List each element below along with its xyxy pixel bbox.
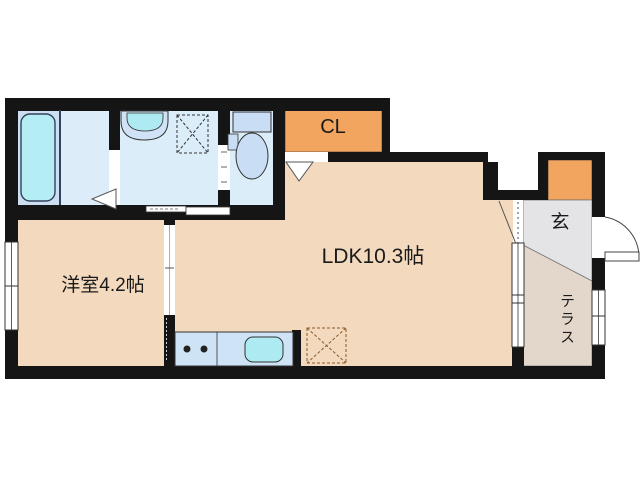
bathroom-floor <box>61 111 109 205</box>
wall-toilet-right <box>273 98 285 220</box>
closet-door-opening <box>285 152 328 162</box>
wall-below-closet <box>328 152 488 162</box>
closet-label: CL <box>308 116 358 138</box>
stove-burner-icon <box>201 346 208 353</box>
floorplan-canvas: 洋室4.2帖 LDK10.3帖 CL 玄 テラス <box>0 0 640 480</box>
ldk-floor-upper <box>285 162 483 218</box>
kitchen-counter-icon <box>175 332 293 366</box>
wall-room-divider-bottom <box>164 315 175 366</box>
kitchen-sink-icon <box>245 337 283 362</box>
wall-top <box>5 98 390 111</box>
wall-right-mid <box>592 258 605 290</box>
stove-burner-icon <box>184 346 191 353</box>
wall-terrace-left <box>512 347 524 366</box>
wall-bottom <box>5 366 605 379</box>
entry-door-leaf <box>605 252 639 261</box>
bath-partition-line <box>59 110 61 205</box>
entrance-storage-floor <box>548 160 592 200</box>
entry-door-arc <box>605 217 639 257</box>
wall-closet-right <box>382 98 390 152</box>
wall-left <box>5 98 18 379</box>
bathtub-icon <box>21 114 55 201</box>
floorplan-drawing <box>0 0 640 480</box>
ldk-label: LDK10.3帖 <box>298 245 448 268</box>
wall-right-lower <box>592 345 605 379</box>
western-room-label: 洋室4.2帖 <box>38 276 168 297</box>
wall-wet-area-bottom <box>5 205 285 220</box>
entry-door-opening <box>592 217 605 258</box>
washroom-sliding-door-panel2 <box>186 207 230 215</box>
entrance-label: 玄 <box>545 213 575 234</box>
wall-right-upper <box>592 152 605 217</box>
wall-bath-washroom <box>109 98 120 150</box>
washbasin-bowl-icon <box>127 113 163 131</box>
terrace-label: テラス <box>550 284 574 356</box>
